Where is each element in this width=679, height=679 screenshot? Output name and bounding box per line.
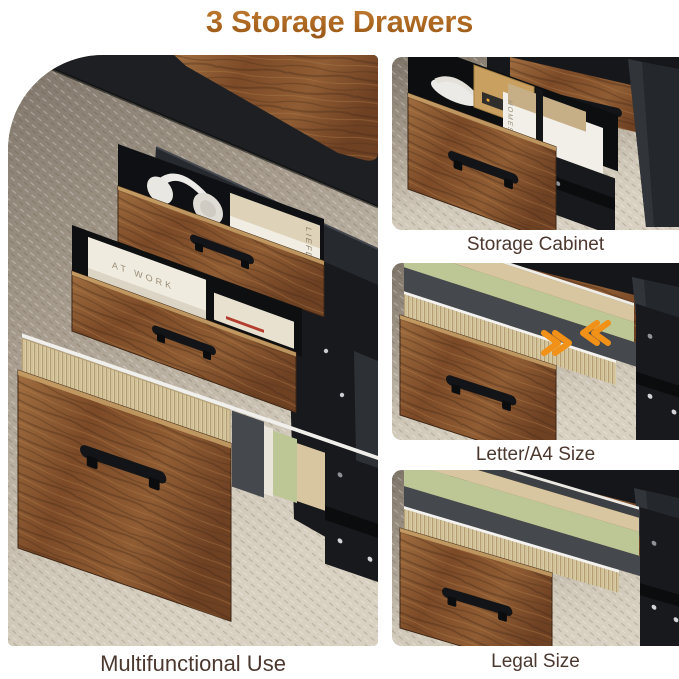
photo-storage-cabinet: HOMES bbox=[392, 57, 679, 230]
drawer-box bbox=[640, 507, 679, 646]
folder-cream bbox=[297, 443, 325, 511]
caption-multifunctional-use: Multifunctional Use bbox=[8, 651, 378, 677]
caption-letter-a4-size: Letter/A4 Size bbox=[392, 444, 679, 466]
legal-size-illustration bbox=[392, 470, 679, 646]
letter-a4-illustration bbox=[392, 263, 679, 440]
desk-drawers-illustration: LIEFD AT WORK bbox=[8, 55, 378, 646]
storage-cabinet-illustration: HOMES bbox=[392, 57, 679, 230]
photo-letter-a4-size bbox=[392, 263, 679, 440]
caption-storage-cabinet: Storage Cabinet bbox=[392, 234, 679, 256]
caption-legal-size: Legal Size bbox=[392, 651, 679, 673]
drawer-box bbox=[636, 304, 679, 440]
folder-green bbox=[273, 431, 297, 503]
product-infographic: 3 Storage Drawers bbox=[0, 0, 679, 679]
photo-legal-size bbox=[392, 470, 679, 646]
folder-dark bbox=[232, 411, 264, 498]
page-title: 3 Storage Drawers bbox=[0, 1, 679, 45]
photo-multifunctional-use: LIEFD AT WORK bbox=[8, 55, 378, 646]
